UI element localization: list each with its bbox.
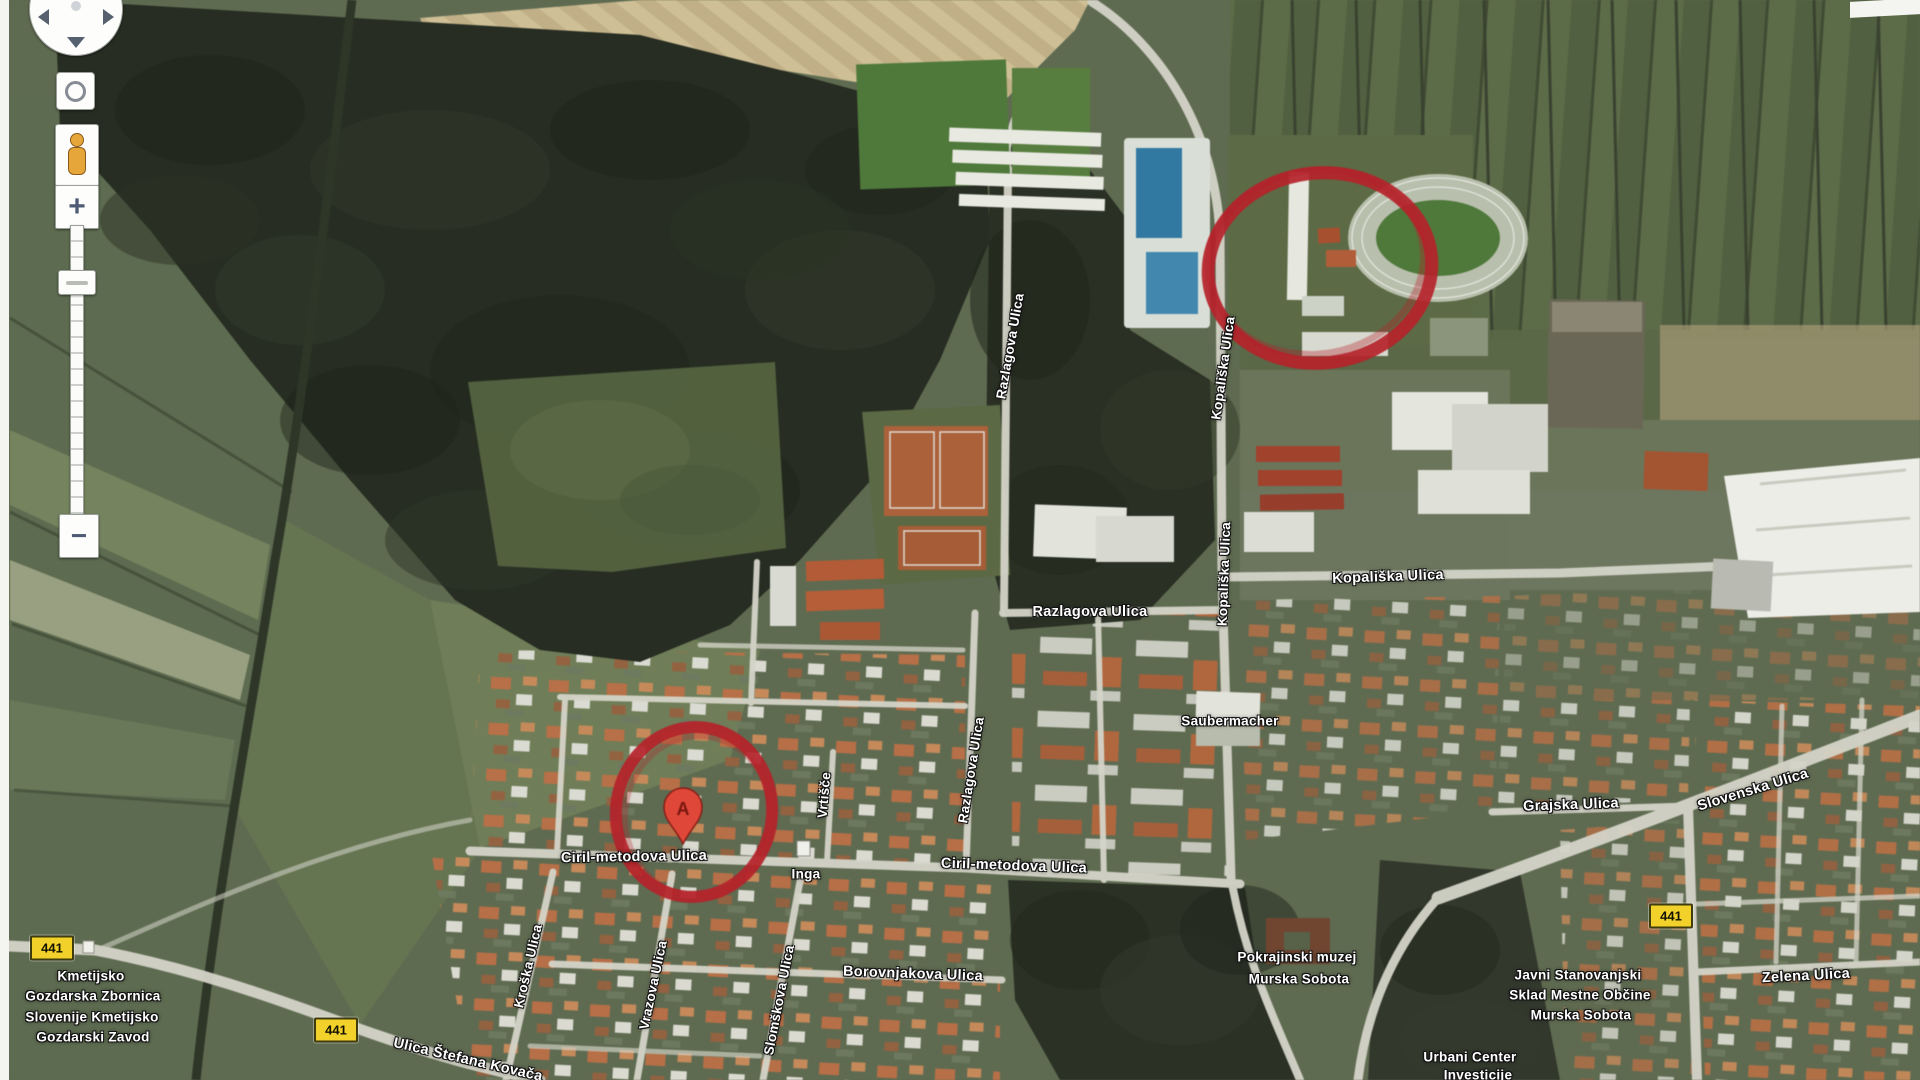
swimming-pool-2 <box>1146 252 1198 314</box>
forest-clearing <box>468 362 786 572</box>
route-badge-441-west: 441 <box>30 936 74 961</box>
pan-center-icon[interactable] <box>71 1 81 11</box>
map-viewport[interactable]: A Razlagova Ulica Kopališka Ulica Kopali… <box>0 0 1920 1080</box>
grandstand <box>1287 172 1309 300</box>
tennis-courts <box>862 405 1010 585</box>
saubermacher-building <box>1195 691 1260 723</box>
scan-edge-left <box>0 0 9 1080</box>
street-view-pegman-button[interactable] <box>55 124 99 187</box>
reset-view-icon <box>65 81 86 102</box>
pan-right-arrow-icon[interactable] <box>103 9 114 25</box>
swimming-pool <box>1136 148 1182 238</box>
pan-left-arrow-icon[interactable] <box>38 9 49 25</box>
zoom-in-button[interactable]: + <box>55 185 99 229</box>
satellite-imagery[interactable]: A <box>0 0 1920 1080</box>
marker-a-label: A <box>677 799 690 819</box>
zoom-slider-handle[interactable] <box>58 270 96 295</box>
pan-down-arrow-icon[interactable] <box>67 37 85 48</box>
reset-view-button[interactable] <box>56 72 95 110</box>
route-badge-441-south: 441 <box>314 1018 358 1043</box>
pegman-body-icon <box>69 148 85 174</box>
zoom-out-button[interactable]: − <box>59 514 99 558</box>
route-badge-441-east: 441 <box>1649 904 1693 929</box>
pegman-icon <box>71 134 83 146</box>
